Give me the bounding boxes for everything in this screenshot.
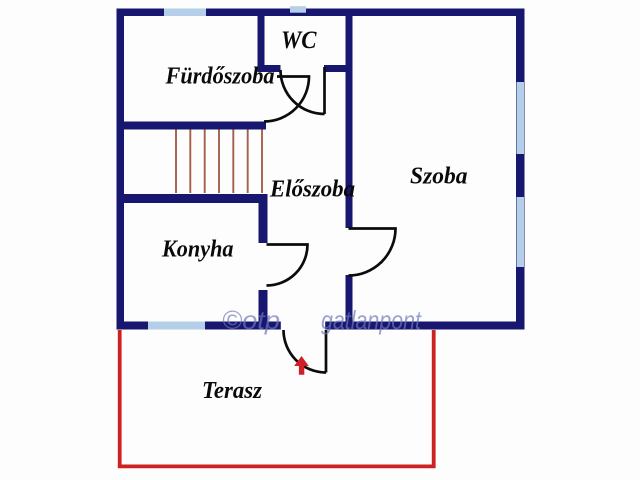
svg-text:gatlanpont: gatlanpont — [321, 305, 422, 335]
svg-text:Szoba: Szoba — [410, 164, 468, 190]
svg-text:Konyha: Konyha — [161, 237, 233, 263]
svg-text:Fürdőszoba: Fürdőszoba — [165, 64, 275, 90]
svg-text:WC: WC — [281, 27, 317, 54]
svg-text:©otp: ©otp — [222, 305, 280, 335]
svg-text:Előszoba: Előszoba — [269, 177, 355, 203]
svg-text:Terasz: Terasz — [202, 378, 263, 404]
